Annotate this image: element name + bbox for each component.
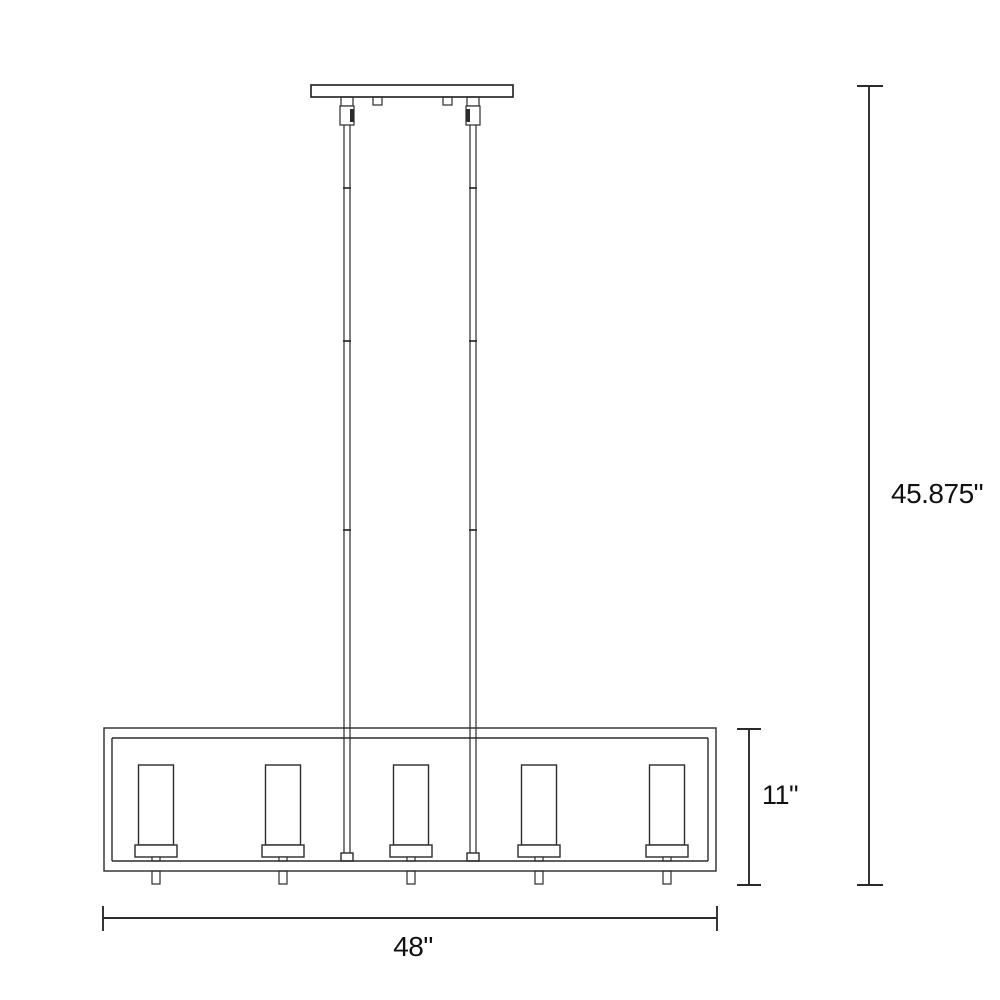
shade-holder	[646, 845, 688, 857]
finial-pin	[152, 871, 160, 884]
suspension-rod	[466, 97, 480, 861]
canopy-clip-left	[373, 97, 382, 105]
rod-frame-foot	[467, 853, 479, 861]
glass-shade	[266, 765, 301, 845]
suspension-rod	[340, 97, 354, 861]
finial-pin	[663, 871, 671, 884]
rod-frame-foot	[341, 853, 353, 861]
collar-set-screw	[466, 109, 470, 122]
rod-canopy-mount	[467, 97, 479, 106]
shade-holder	[390, 845, 432, 857]
chandelier-dimension-diagram: 45.875" 11" 48"	[0, 0, 1000, 1000]
shade-holder	[135, 845, 177, 857]
glass-shade	[394, 765, 429, 845]
glass-shade	[139, 765, 174, 845]
dimension-body-height: 11"	[737, 729, 798, 885]
rod-layer	[340, 97, 480, 861]
glass-shade	[650, 765, 685, 845]
canopy-bar	[311, 85, 513, 97]
body-height-label: 11"	[762, 780, 798, 810]
dimension-width: 48"	[103, 906, 717, 962]
candle-shade-assembly	[518, 765, 560, 884]
finial-pin	[279, 871, 287, 884]
shade-layer	[135, 765, 688, 884]
candle-shade-assembly	[262, 765, 304, 884]
candle-shade-assembly	[646, 765, 688, 884]
overall-height-label: 45.875"	[891, 478, 983, 509]
candle-shade-assembly	[135, 765, 177, 884]
candle-shade-assembly	[390, 765, 432, 884]
canopy-clip-right	[443, 97, 452, 105]
shade-holder	[518, 845, 560, 857]
finial-pin	[535, 871, 543, 884]
finial-pin	[407, 871, 415, 884]
dimension-overall-height: 45.875"	[857, 86, 983, 885]
glass-shade	[522, 765, 557, 845]
shade-holder	[262, 845, 304, 857]
rod-canopy-mount	[341, 97, 353, 106]
dimension-diagram-page: 45.875" 11" 48"	[0, 0, 1000, 1000]
width-label: 48"	[393, 931, 433, 962]
collar-set-screw	[350, 109, 354, 122]
